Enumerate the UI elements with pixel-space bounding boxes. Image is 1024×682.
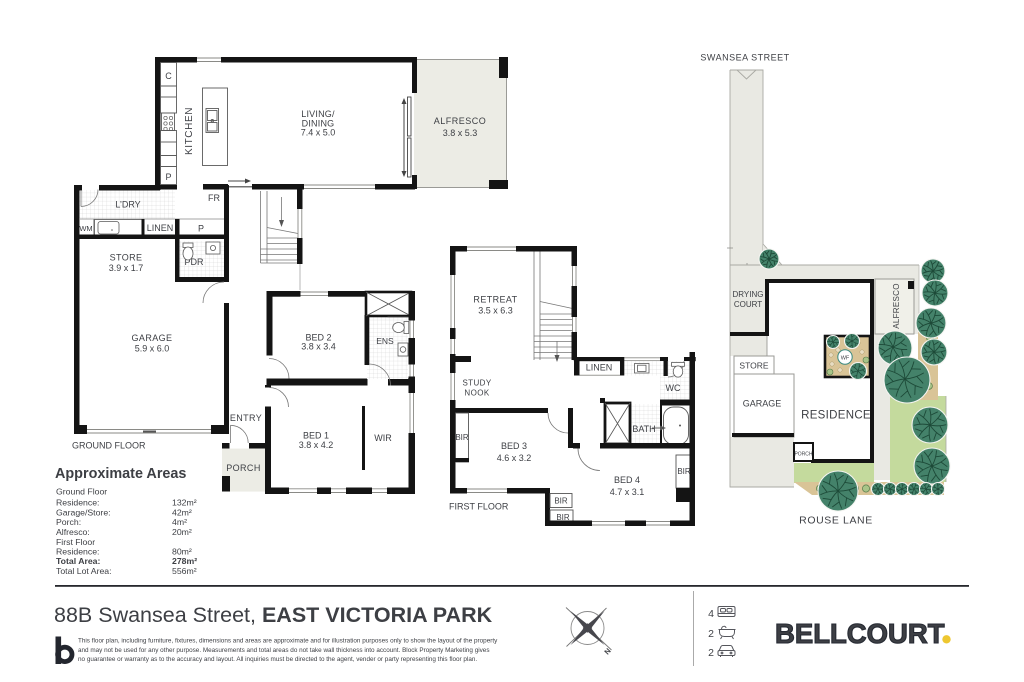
svg-text:20m²: 20m² bbox=[172, 527, 192, 537]
svg-text:BED 3: BED 3 bbox=[501, 441, 527, 451]
svg-text:LINEN: LINEN bbox=[586, 363, 613, 373]
svg-text:KITCHEN: KITCHEN bbox=[184, 107, 195, 155]
svg-text:P: P bbox=[165, 172, 171, 182]
svg-text:BIR: BIR bbox=[455, 433, 469, 442]
svg-text:GARAGE: GARAGE bbox=[132, 333, 173, 343]
svg-text:Ground Floor: Ground Floor bbox=[56, 486, 107, 496]
svg-text:DRYING: DRYING bbox=[733, 290, 764, 299]
svg-text:4: 4 bbox=[708, 608, 714, 620]
svg-text:Residence:: Residence: bbox=[56, 497, 99, 507]
svg-text:ALFRESCO: ALFRESCO bbox=[434, 116, 487, 126]
svg-text:278m²: 278m² bbox=[172, 556, 197, 566]
svg-text:Total Lot Area:: Total Lot Area: bbox=[56, 566, 112, 576]
svg-text:PORCH: PORCH bbox=[226, 463, 261, 473]
svg-text:7.4 x 5.0: 7.4 x 5.0 bbox=[301, 128, 336, 138]
svg-text:2: 2 bbox=[708, 628, 714, 640]
svg-text:FR: FR bbox=[208, 193, 220, 203]
svg-text:5.9 x 6.0: 5.9 x 6.0 bbox=[135, 344, 170, 354]
svg-text:and may not be used for any ot: and may not be used for any other purpos… bbox=[78, 647, 490, 654]
svg-text:WM: WM bbox=[79, 224, 92, 233]
svg-text:RESIDENCE: RESIDENCE bbox=[801, 410, 871, 422]
svg-text:2: 2 bbox=[708, 647, 714, 659]
svg-text:3.8 x 3.4: 3.8 x 3.4 bbox=[301, 342, 336, 352]
svg-text:3.8 x 5.3: 3.8 x 5.3 bbox=[443, 128, 478, 138]
svg-text:4m²: 4m² bbox=[172, 517, 187, 527]
svg-text:BIR: BIR bbox=[554, 497, 568, 506]
svg-text:First Floor: First Floor bbox=[56, 537, 95, 547]
svg-text:BIR: BIR bbox=[677, 467, 691, 476]
svg-text:132m²: 132m² bbox=[172, 497, 197, 507]
svg-text:C: C bbox=[165, 71, 172, 81]
svg-text:88B Swansea Street, EAST VICTO: 88B Swansea Street, EAST VICTORIA PARK bbox=[54, 603, 493, 627]
svg-text:COURT: COURT bbox=[734, 300, 762, 309]
svg-text:RETREAT: RETREAT bbox=[473, 295, 517, 305]
svg-text:556m²: 556m² bbox=[172, 566, 197, 576]
svg-text:STUDY: STUDY bbox=[462, 379, 491, 388]
svg-text:N: N bbox=[602, 646, 612, 656]
svg-text:BELLCOURT: BELLCOURT bbox=[775, 618, 945, 649]
svg-text:Porch:: Porch: bbox=[56, 517, 81, 527]
svg-text:3.9 x 1.7: 3.9 x 1.7 bbox=[109, 263, 144, 273]
svg-text:80m²: 80m² bbox=[172, 547, 192, 557]
svg-text:L’DRY: L’DRY bbox=[115, 200, 140, 210]
svg-text:WIR: WIR bbox=[374, 433, 392, 443]
svg-text:Garage/Store:: Garage/Store: bbox=[56, 507, 111, 517]
svg-text:BATH: BATH bbox=[632, 424, 655, 434]
svg-text:P: P bbox=[198, 224, 204, 234]
svg-text:3.5 x 6.3: 3.5 x 6.3 bbox=[478, 306, 513, 316]
svg-text:FIRST FLOOR: FIRST FLOOR bbox=[449, 502, 509, 512]
svg-text:ENTRY: ENTRY bbox=[230, 413, 262, 423]
svg-text:STORE: STORE bbox=[739, 361, 768, 371]
svg-text:3.8 x 4.2: 3.8 x 4.2 bbox=[299, 440, 334, 450]
svg-text:GARAGE: GARAGE bbox=[743, 399, 782, 409]
svg-text:This floor plan, including fur: This floor plan, including furniture, fi… bbox=[78, 638, 498, 645]
svg-text:WF: WF bbox=[841, 356, 850, 362]
svg-text:ENS: ENS bbox=[376, 336, 394, 346]
svg-text:BED 1: BED 1 bbox=[303, 431, 329, 441]
svg-text:Residence:: Residence: bbox=[56, 547, 99, 557]
svg-text:Alfresco:: Alfresco: bbox=[56, 527, 90, 537]
svg-text:SWANSEA STREET: SWANSEA STREET bbox=[700, 53, 789, 63]
svg-text:NOOK: NOOK bbox=[464, 389, 489, 398]
svg-text:GROUND FLOOR: GROUND FLOOR bbox=[72, 441, 146, 451]
svg-text:4.6 x 3.2: 4.6 x 3.2 bbox=[497, 453, 532, 463]
svg-text:Total Area:: Total Area: bbox=[56, 556, 101, 566]
svg-text:ALFRESCO: ALFRESCO bbox=[892, 283, 901, 329]
svg-text:LINEN: LINEN bbox=[147, 223, 174, 233]
svg-text:BED 4: BED 4 bbox=[614, 475, 640, 485]
svg-text:42m²: 42m² bbox=[172, 507, 192, 517]
svg-text:WC: WC bbox=[666, 383, 681, 393]
svg-text:no guarantee or warranty as to: no guarantee or warranty as to the accur… bbox=[78, 656, 477, 663]
svg-text:4.7 x 3.1: 4.7 x 3.1 bbox=[610, 487, 645, 497]
svg-text:ROUSE LANE: ROUSE LANE bbox=[799, 515, 873, 527]
svg-text:PORCH: PORCH bbox=[794, 452, 812, 458]
svg-text:STORE: STORE bbox=[110, 253, 143, 263]
svg-text:Approximate Areas: Approximate Areas bbox=[55, 466, 186, 482]
